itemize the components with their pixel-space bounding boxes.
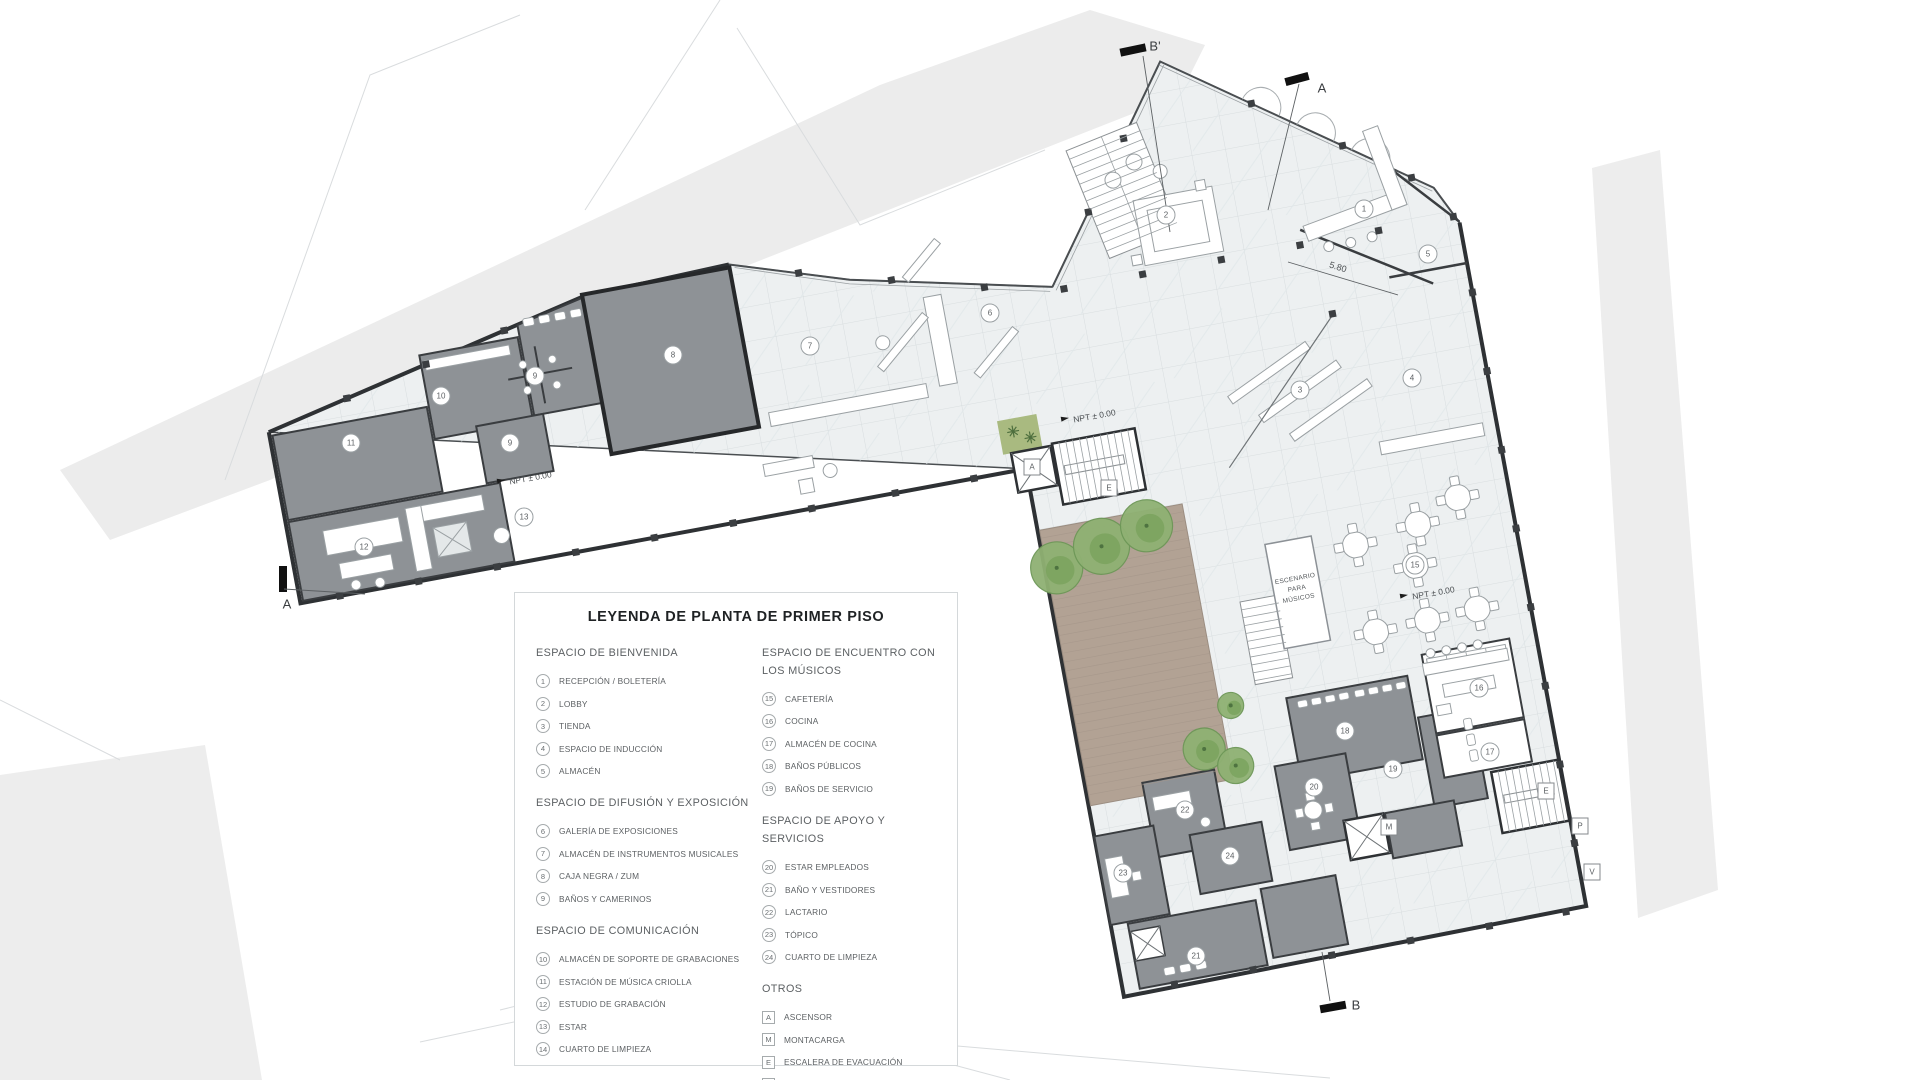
legend-item-1: 1RECEPCIÓN / BOLETERÍA — [536, 670, 750, 693]
key-marker-E: E — [1538, 783, 1555, 800]
square-key-icon: M — [762, 1033, 775, 1046]
circle-key-icon: 9 — [536, 892, 550, 906]
legend-section-title: ESPACIO DE DIFUSIÓN Y EXPOSICIÓN — [536, 795, 750, 813]
circle-key-icon: 11 — [536, 975, 550, 989]
legend-item-A: AASCENSOR — [762, 1006, 948, 1029]
legend-item-label: BAÑO Y VESTIDORES — [785, 885, 875, 895]
legend-item-16: 16COCINA — [762, 710, 948, 733]
circle-key-icon: 21 — [762, 883, 776, 897]
circle-key-icon: 8 — [536, 869, 550, 883]
legend-item-M: MMONTACARGA — [762, 1029, 948, 1052]
legend-item-14: 14CUARTO DE LIMPIEZA — [536, 1038, 750, 1061]
legend-section-1: ESPACIO DE DIFUSIÓN Y EXPOSICIÓN6GALERÍA… — [536, 795, 750, 910]
key-marker-E: E — [1101, 480, 1118, 497]
room-marker-3: 3 — [1291, 381, 1310, 400]
circle-key-icon: 4 — [536, 742, 550, 756]
legend-item-label: GALERÍA DE EXPOSICIONES — [559, 826, 678, 836]
room-marker-19: 19 — [1384, 760, 1403, 779]
legend-item-label: TÓPICO — [785, 930, 818, 940]
room-marker-9: 9 — [501, 434, 520, 453]
circle-key-icon: 16 — [762, 714, 776, 728]
legend-section-title: ESPACIO DE COMUNICACIÓN — [536, 923, 750, 941]
room-marker-2: 2 — [1157, 206, 1176, 225]
square-key-icon: E — [762, 1056, 775, 1069]
room-marker-9: 9 — [526, 367, 545, 386]
legend-item-label: ESTUDIO DE GRABACIÓN — [559, 999, 666, 1009]
section-label-A: A — [1318, 81, 1327, 96]
legend-item-label: ESTAR EMPLEADOS — [785, 862, 869, 872]
legend-section-0: ESPACIO DE BIENVENIDA1RECEPCIÓN / BOLETE… — [536, 645, 750, 782]
legend-item-2: 2LOBBY — [536, 692, 750, 715]
key-marker-P: P — [1572, 818, 1589, 835]
legend-item-label: ESTAR — [559, 1022, 587, 1032]
legend-item-8: 8CAJA NEGRA / ZUM — [536, 865, 750, 888]
room-marker-15: 15 — [1406, 556, 1425, 575]
key-marker-V: V — [1584, 864, 1601, 881]
legend-item-label: LOBBY — [559, 699, 588, 709]
circle-key-icon: 18 — [762, 759, 776, 773]
legend-section-title: ESPACIO DE BIENVENIDA — [536, 645, 750, 663]
level-flag-icon — [1398, 591, 1410, 605]
level-flag-icon — [1059, 414, 1071, 428]
legend-item-21: 21BAÑO Y VESTIDORES — [762, 878, 948, 901]
room-marker-18: 18 — [1336, 722, 1355, 741]
legend-item-label: CUARTO DE LIMPIEZA — [559, 1044, 651, 1054]
key-marker-A: A — [1024, 459, 1041, 476]
circle-key-icon: 12 — [536, 997, 550, 1011]
circle-key-icon: 24 — [762, 950, 776, 964]
legend-item-11: 11ESTACIÓN DE MÚSICA CRIOLLA — [536, 970, 750, 993]
legend-section-title: ESPACIO DE APOYO Y SERVICIOS — [762, 813, 948, 849]
circle-key-icon: 17 — [762, 737, 776, 751]
legend-item-label: RECEPCIÓN / BOLETERÍA — [559, 676, 666, 686]
room-marker-12: 12 — [355, 538, 374, 557]
circle-key-icon: 3 — [536, 719, 550, 733]
legend-item-9: 9BAÑOS Y CAMERINOS — [536, 888, 750, 911]
legend-section-title: ESPACIO DE ENCUENTRO CON LOS MÚSICOS — [762, 645, 948, 681]
legend-item-label: COCINA — [785, 716, 818, 726]
legend-column-1: ESPACIO DE BIENVENIDA1RECEPCIÓN / BOLETE… — [536, 645, 750, 1073]
legend-item-label: MONTACARGA — [784, 1035, 845, 1045]
room-marker-11: 11 — [342, 434, 361, 453]
legend-section-4: ESPACIO DE APOYO Y SERVICIOS20ESTAR EMPL… — [762, 813, 948, 968]
room-marker-10: 10 — [432, 387, 451, 406]
legend-item-22: 22LACTARIO — [762, 901, 948, 924]
circle-key-icon: 2 — [536, 697, 550, 711]
room-marker-23: 23 — [1114, 864, 1133, 883]
legend-item-10: 10ALMACÉN DE SOPORTE DE GRABACIONES — [536, 948, 750, 971]
legend-item-label: CUARTO DE LIMPIEZA — [785, 952, 877, 962]
circle-key-icon: 7 — [536, 847, 550, 861]
circle-key-icon: 22 — [762, 905, 776, 919]
room-marker-7: 7 — [801, 337, 820, 356]
room-marker-6: 6 — [981, 304, 1000, 323]
legend-item-5: 5ALMACÉN — [536, 760, 750, 783]
circle-key-icon: 5 — [536, 764, 550, 778]
legend-item-15: 15CAFETERÍA — [762, 688, 948, 711]
room-marker-13: 13 — [515, 508, 534, 527]
legend-item-19: 19BAÑOS DE SERVICIO — [762, 778, 948, 801]
legend-item-18: 18BAÑOS PÚBLICOS — [762, 755, 948, 778]
legend-column-2: ESPACIO DE ENCUENTRO CON LOS MÚSICOS15CA… — [762, 645, 948, 1080]
circle-key-icon: 19 — [762, 782, 776, 796]
legend-section-title: OTROS — [762, 981, 948, 999]
room-marker-22: 22 — [1176, 801, 1195, 820]
circle-key-icon: 6 — [536, 824, 550, 838]
legend-item-label: CAJA NEGRA / ZUM — [559, 871, 639, 881]
legend-item-label: BAÑOS Y CAMERINOS — [559, 894, 652, 904]
legend-item-13: 13ESTAR — [536, 1015, 750, 1038]
legend-item-label: LACTARIO — [785, 907, 827, 917]
legend-item-3: 3TIENDA — [536, 715, 750, 738]
room-marker-16: 16 — [1470, 679, 1489, 698]
legend-item-label: ALMACÉN DE SOPORTE DE GRABACIONES — [559, 954, 739, 964]
legend-item-label: ESPACIO DE INDUCCIÓN — [559, 744, 662, 754]
room-marker-20: 20 — [1305, 778, 1324, 797]
legend-item-label: ESTACIÓN DE MÚSICA CRIOLLA — [559, 977, 692, 987]
legend-item-label: ASCENSOR — [784, 1012, 832, 1022]
legend-item-12: 12ESTUDIO DE GRABACIÓN — [536, 993, 750, 1016]
section-label-B': B' — [1149, 39, 1160, 54]
circle-key-icon: 10 — [536, 952, 550, 966]
room-marker-4: 4 — [1403, 369, 1422, 388]
square-key-icon: A — [762, 1011, 775, 1024]
legend-item-V: VINGRESO VEHICULAR — [762, 1074, 948, 1080]
legend-item-label: ESCALERA DE EVACUACIÓN — [784, 1057, 903, 1067]
section-label-A: A — [283, 597, 292, 612]
legend-item-24: 24CUARTO DE LIMPIEZA — [762, 946, 948, 969]
legend-item-label: ALMACÉN — [559, 766, 601, 776]
room-marker-8: 8 — [664, 346, 683, 365]
legend-title: LEYENDA DE PLANTA DE PRIMER PISO — [515, 609, 957, 625]
legend-item-7: 7ALMACÉN DE INSTRUMENTOS MUSICALES — [536, 843, 750, 866]
legend-item-label: CAFETERÍA — [785, 694, 833, 704]
circle-key-icon: 1 — [536, 674, 550, 688]
legend-item-label: BAÑOS PÚBLICOS — [785, 761, 861, 771]
circle-key-icon: 15 — [762, 692, 776, 706]
legend-item-label: ALMACÉN DE COCINA — [785, 739, 877, 749]
legend-item-20: 20ESTAR EMPLEADOS — [762, 856, 948, 879]
legend-item-E: EESCALERA DE EVACUACIÓN — [762, 1051, 948, 1074]
legend-box: LEYENDA DE PLANTA DE PRIMER PISO ESPACIO… — [514, 592, 958, 1066]
legend-item-label: ALMACÉN DE INSTRUMENTOS MUSICALES — [559, 849, 738, 859]
legend-section-5: OTROSAASCENSORMMONTACARGAEESCALERA DE EV… — [762, 981, 948, 1080]
legend-item-4: 4ESPACIO DE INDUCCIÓN — [536, 737, 750, 760]
legend-section-2: ESPACIO DE COMUNICACIÓN10ALMACÉN DE SOPO… — [536, 923, 750, 1060]
legend-section-3: ESPACIO DE ENCUENTRO CON LOS MÚSICOS15CA… — [762, 645, 948, 800]
legend-item-label: BAÑOS DE SERVICIO — [785, 784, 873, 794]
room-marker-1: 1 — [1355, 200, 1374, 219]
floor-plan-canvas — [0, 0, 1920, 1080]
room-marker-24: 24 — [1221, 847, 1240, 866]
legend-item-label: TIENDA — [559, 721, 591, 731]
legend-item-23: 23TÓPICO — [762, 923, 948, 946]
circle-key-icon: 20 — [762, 860, 776, 874]
room-marker-5: 5 — [1419, 245, 1438, 264]
level-flag-icon — [495, 476, 507, 490]
key-marker-M: M — [1381, 819, 1398, 836]
legend-item-17: 17ALMACÉN DE COCINA — [762, 733, 948, 756]
room-marker-21: 21 — [1187, 947, 1206, 966]
section-label-B: B — [1352, 998, 1361, 1013]
floor-plan-page: 12345678991011121315161718192021222324AE… — [0, 0, 1920, 1080]
room-marker-17: 17 — [1481, 743, 1500, 762]
circle-key-icon: 14 — [536, 1042, 550, 1056]
legend-item-6: 6GALERÍA DE EXPOSICIONES — [536, 820, 750, 843]
circle-key-icon: 23 — [762, 928, 776, 942]
circle-key-icon: 13 — [536, 1020, 550, 1034]
